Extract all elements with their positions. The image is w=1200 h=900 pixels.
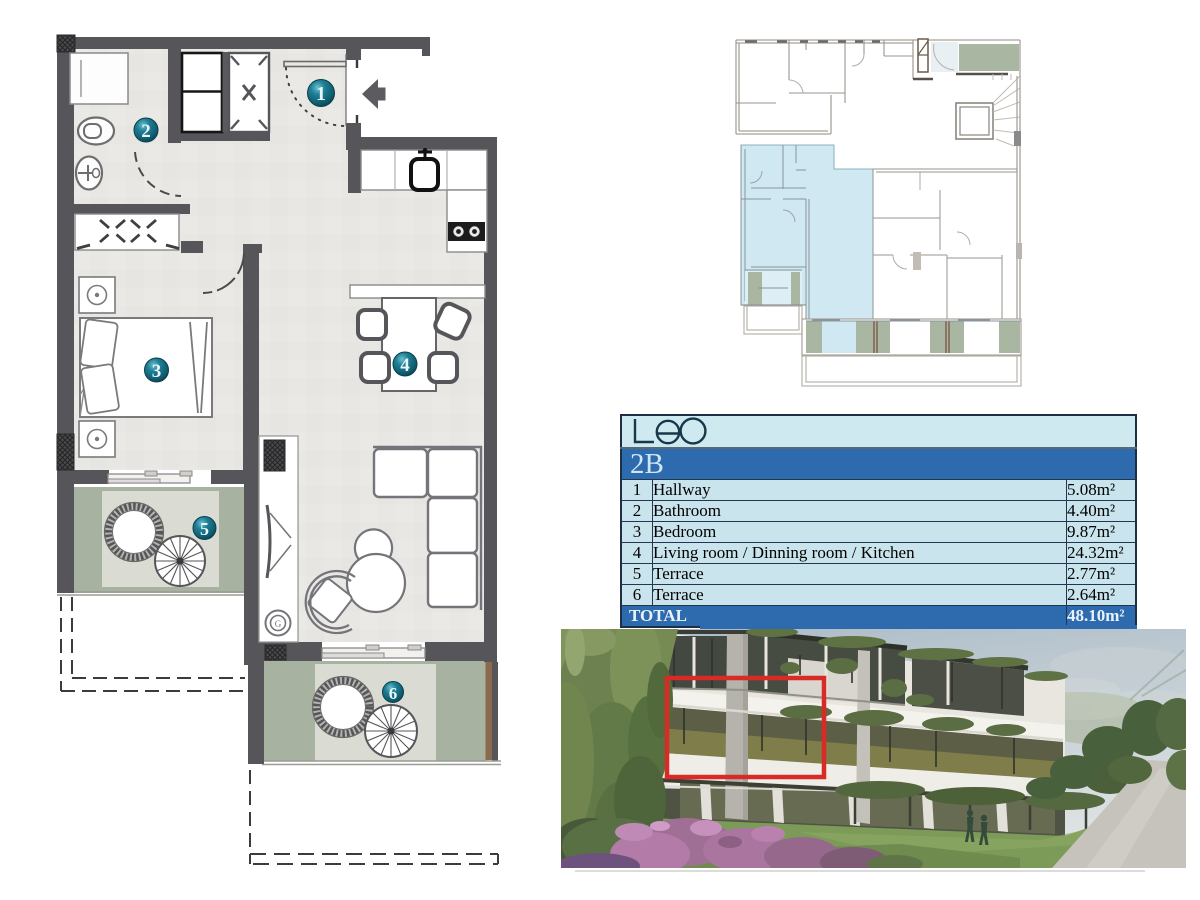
svg-text:1: 1	[316, 83, 326, 105]
svg-text:2: 2	[141, 121, 151, 142]
svg-text:4: 4	[400, 355, 410, 376]
svg-text:5: 5	[200, 519, 209, 539]
svg-text:3: 3	[152, 361, 162, 382]
svg-text:6: 6	[389, 684, 398, 703]
svg-text:G: G	[275, 619, 282, 629]
